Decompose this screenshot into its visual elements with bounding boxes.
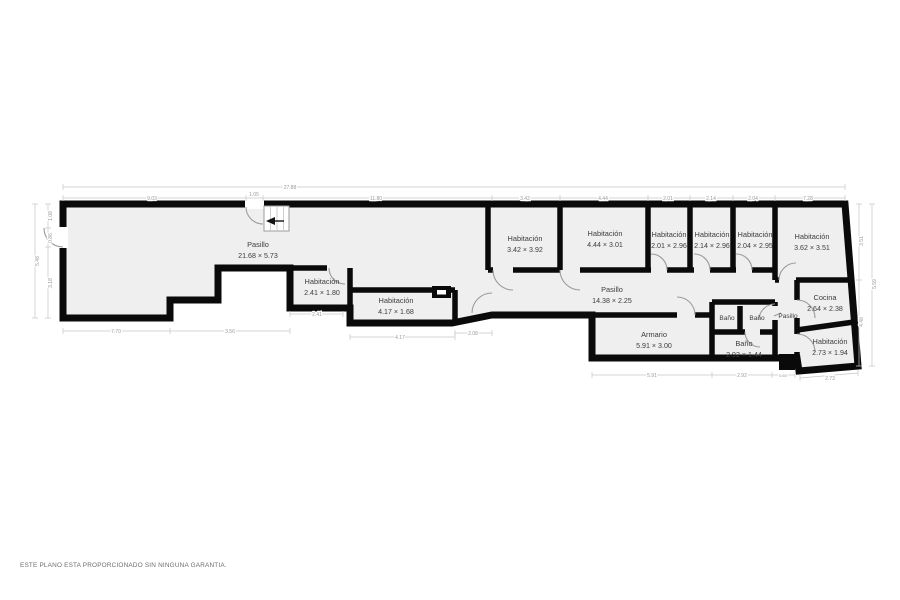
room-label-habitacion-241: Habitación: [305, 277, 340, 286]
dim-label: 2.04: [748, 196, 758, 202]
dim-label: 7.28: [803, 196, 813, 202]
floor-plan-page: 27.88 9.03 1.05 11.80 3.42 4.44 2.01 2.1…: [0, 0, 900, 600]
dim-label: 3.42: [520, 196, 530, 202]
dim-label: 2.73: [825, 376, 835, 382]
room-label-habitacion-342: Habitación: [508, 234, 543, 243]
room-dims-armario: 5.91 × 3.00: [636, 342, 672, 350]
room-dims-habitacion-362: 3.62 × 3.51: [794, 244, 830, 252]
dim-line-bottom-left: [63, 328, 290, 334]
dim-label: 0.86: [48, 233, 54, 243]
room-dims-habitacion-444: 4.44 × 3.01: [587, 241, 623, 249]
dim-label: 11.80: [370, 196, 382, 202]
room-dims-habitacion-241: 2.41 × 1.80: [304, 289, 340, 297]
room-dims-habitacion-204: 2.04 × 2.95: [737, 242, 773, 250]
stairs-symbol: [264, 206, 289, 231]
left-door-gap: [57, 227, 68, 248]
dim-label: 5.59: [872, 279, 878, 289]
room-dims-bano-292: 2.92 × 1.44: [726, 351, 762, 359]
dim-label: 27.88: [284, 185, 297, 191]
room-label-bano-292: Baño: [735, 339, 752, 348]
room-label-pasillo-main: Pasillo: [247, 240, 269, 249]
room-label-pasillo-corridor: Pasillo: [601, 285, 623, 294]
room-dims-habitacion-273: 2.73 × 1.94: [812, 349, 848, 357]
room-dims-habitacion-417: 4.17 × 1.68: [378, 308, 414, 316]
dim-label: 2.41: [312, 312, 322, 318]
dim-label: 4.17: [395, 335, 405, 341]
room-label-habitacion-273: Habitación: [813, 337, 848, 346]
dim-label: 4.44: [598, 196, 608, 202]
room-label-habitacion-214: Habitación: [695, 230, 730, 239]
dim-label: 3.56: [225, 329, 235, 335]
dim-label: 2.92: [737, 373, 747, 379]
room-dims-habitacion-214: 2.14 × 2.96: [694, 242, 730, 250]
dim-label: 3.51: [859, 236, 865, 246]
dim-line-bottom-right: [592, 372, 795, 378]
room-dims-habitacion-201: 2.01 × 2.96: [651, 242, 687, 250]
dim-line-top-outer: [63, 184, 845, 190]
shaft-symbol: [432, 286, 451, 298]
dim-label: 1.08: [48, 211, 54, 221]
room-label-habitacion-444: Habitación: [588, 229, 623, 238]
dim-label: 1.05: [249, 192, 259, 198]
room-label-habitacion-417: Habitación: [379, 296, 414, 305]
wall-stub: [779, 354, 795, 370]
dim-label: 4.48: [859, 317, 865, 327]
disclaimer-text: ESTE PLANO ESTA PROPORCIONADO SIN NINGUN…: [20, 562, 227, 569]
room-dims-pasillo-main: 21.68 × 5.73: [238, 252, 278, 260]
dim-label: 5.48: [35, 256, 41, 266]
room-label-armario: Armario: [641, 330, 667, 339]
dim-label: 5.91: [647, 373, 657, 379]
room-dims-habitacion-342: 3.42 × 3.92: [507, 246, 543, 254]
dim-label: 9.03: [147, 196, 157, 202]
room-label-habitacion-362: Habitación: [795, 232, 830, 241]
room-label-cocina: Cocina: [813, 293, 837, 302]
dim-label: 0.60: [779, 373, 788, 378]
dim-line-top-inner: [63, 195, 845, 201]
dim-label: 2.01: [663, 196, 673, 202]
dim-label: 3.18: [48, 278, 54, 288]
floor-plan-svg: 27.88 9.03 1.05 11.80 3.42 4.44 2.01 2.1…: [0, 0, 900, 600]
room-label-bano-2: Baño: [749, 315, 765, 322]
dim-label: 7.70: [111, 329, 121, 335]
room-label-habitacion-204: Habitación: [738, 230, 773, 239]
room-dims-pasillo-corridor: 14.38 × 2.25: [592, 297, 632, 305]
room-label-bano-1: Baño: [719, 315, 735, 322]
dim-label: 2.14: [706, 196, 716, 202]
entrance-door-gap: [245, 199, 264, 209]
dim-label: 2.08: [468, 331, 478, 337]
room-label-pasillo-small: Pasillo: [778, 313, 798, 320]
room-dims-cocina: 2.64 × 2.38: [807, 305, 843, 313]
room-label-habitacion-201: Habitación: [652, 230, 687, 239]
